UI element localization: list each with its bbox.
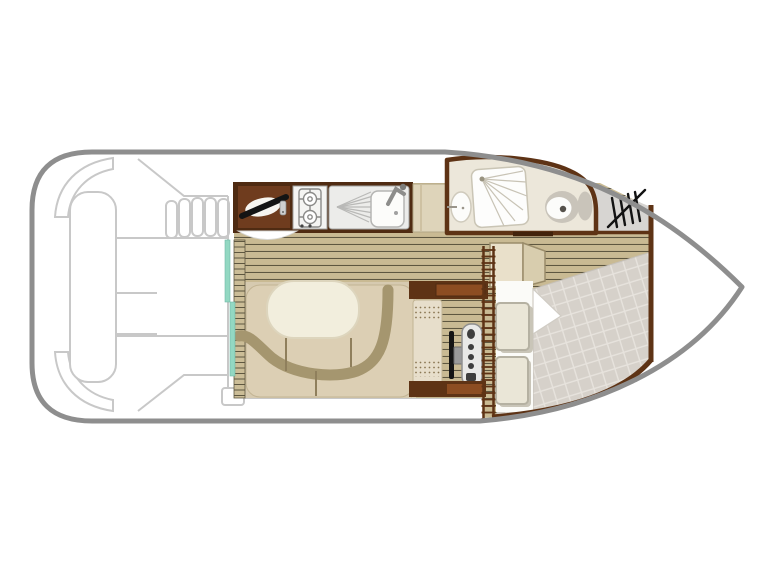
sink-drain <box>394 211 398 215</box>
helm-dashboard-inset <box>436 284 485 296</box>
dinette-table <box>267 281 359 338</box>
shower-head-dot <box>480 177 485 182</box>
sink-faucet-knob <box>400 184 406 190</box>
dinette <box>239 281 414 397</box>
toilet-bowl <box>547 197 572 219</box>
helm-seat-stitching-top <box>415 304 441 320</box>
toilet-cistern <box>578 192 593 221</box>
shower-room <box>447 157 596 234</box>
accordion-door <box>482 246 496 420</box>
stove-knob-right <box>308 224 311 227</box>
galley-remote-dot <box>282 211 284 213</box>
helm-seat-stitching-bottom <box>415 361 441 377</box>
sliding-door-pane-fixed <box>225 240 230 302</box>
floor-plan-canvas <box>0 0 768 576</box>
steering-wheel <box>449 331 454 379</box>
entry-shelf-strip <box>234 240 245 398</box>
sink-basin <box>371 191 404 227</box>
aft-bench <box>70 192 116 382</box>
pillow-bottom <box>496 357 528 404</box>
galley <box>233 182 447 240</box>
boat-floor-plan <box>0 0 768 576</box>
galley-side-cabinet <box>413 184 447 232</box>
wardrobe-side <box>523 243 545 287</box>
deck-steps <box>166 198 229 238</box>
washbasin-drain <box>462 207 465 210</box>
sliding-door-pane-moving <box>230 302 235 376</box>
stove-knob-left <box>300 224 303 227</box>
helm-cabinet-bottom-inset <box>447 384 484 394</box>
toilet-drain <box>560 206 566 212</box>
pillow-top <box>496 303 529 350</box>
